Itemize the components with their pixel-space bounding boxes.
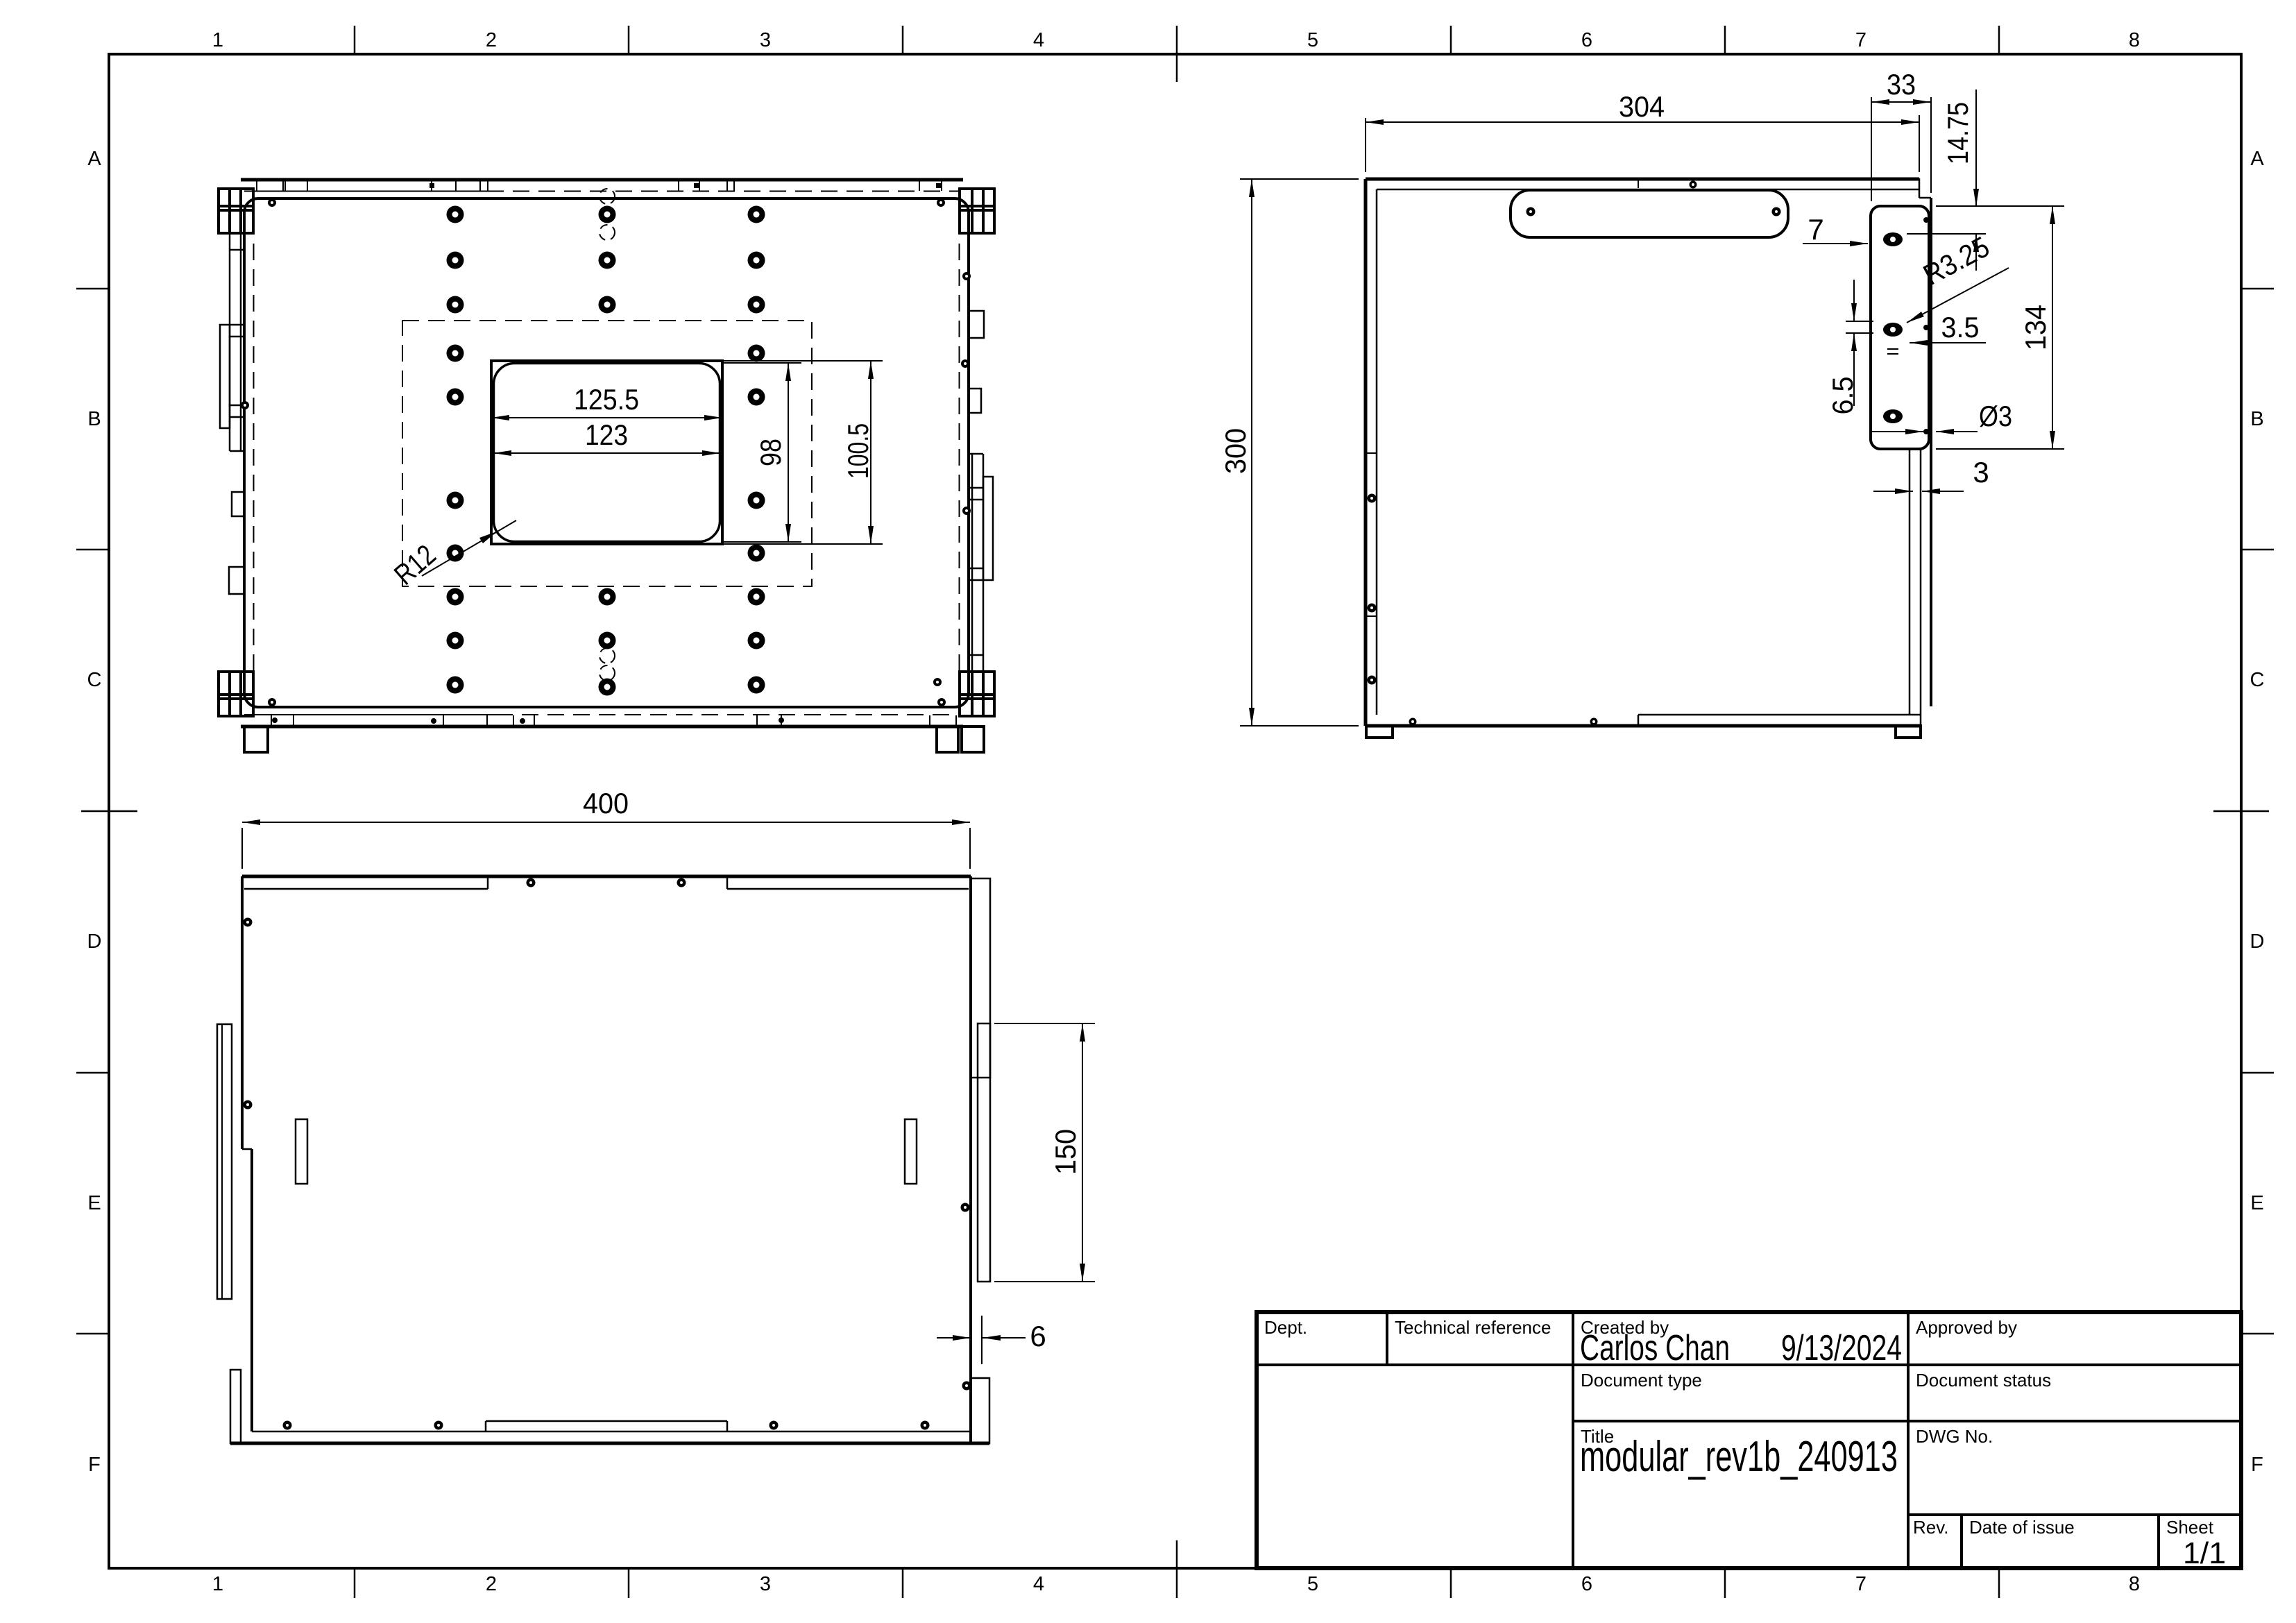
svg-text:E: E (87, 1192, 101, 1214)
svg-text:Technical reference: Technical reference (1395, 1317, 1551, 1338)
svg-text:1: 1 (212, 1573, 223, 1595)
svg-text:Rev.: Rev. (1913, 1517, 1949, 1538)
svg-text:C: C (2250, 669, 2265, 691)
svg-text:3: 3 (1973, 456, 1989, 488)
svg-text:1: 1 (212, 29, 223, 51)
svg-text:3: 3 (760, 1573, 771, 1595)
svg-text:Approved by: Approved by (1916, 1317, 2017, 1338)
svg-text:3.5: 3.5 (1941, 311, 1980, 343)
svg-text:300: 300 (1219, 428, 1252, 474)
svg-text:Ø3: Ø3 (1979, 400, 2012, 432)
svg-text:D: D (87, 931, 102, 953)
svg-text:2: 2 (486, 29, 497, 51)
svg-text:1/1: 1/1 (2183, 1536, 2226, 1570)
svg-text:Dept.: Dept. (1264, 1317, 1307, 1338)
svg-text:150: 150 (1049, 1129, 1082, 1175)
svg-text:8: 8 (2129, 1573, 2140, 1595)
svg-text:4: 4 (1033, 1573, 1044, 1595)
svg-text:6: 6 (1581, 1573, 1592, 1595)
svg-text:E: E (2250, 1192, 2263, 1214)
svg-text:A: A (87, 148, 101, 170)
svg-text:Document status: Document status (1916, 1370, 2051, 1391)
svg-text:Date of issue: Date of issue (1969, 1517, 2075, 1538)
svg-text:6: 6 (1030, 1320, 1046, 1352)
svg-text:Sheet: Sheet (2166, 1517, 2214, 1538)
svg-text:14.75: 14.75 (1941, 102, 1974, 164)
svg-text:B: B (87, 408, 101, 430)
svg-text:2: 2 (486, 1573, 497, 1595)
svg-text:DWG No.: DWG No. (1916, 1426, 1993, 1447)
svg-text:125.5: 125.5 (574, 383, 639, 416)
svg-text:6.5: 6.5 (1826, 377, 1859, 415)
svg-text:304: 304 (1619, 90, 1665, 123)
svg-text:Carlos Chan: Carlos Chan (1580, 1328, 1730, 1368)
svg-text:98: 98 (754, 439, 787, 466)
svg-text:modular_rev1b_240913: modular_rev1b_240913 (1580, 1433, 1898, 1481)
svg-text:7: 7 (1808, 213, 1823, 246)
svg-text:B: B (2250, 408, 2263, 430)
svg-text:A: A (2250, 148, 2264, 170)
svg-text:134: 134 (2019, 305, 2052, 350)
svg-text:400: 400 (583, 787, 629, 819)
svg-text:7: 7 (1855, 1573, 1866, 1595)
svg-text:100.5: 100.5 (842, 423, 874, 479)
svg-text:7: 7 (1855, 29, 1866, 51)
svg-text:33: 33 (1887, 68, 1916, 101)
svg-text:8: 8 (2129, 29, 2140, 51)
svg-text:C: C (87, 669, 102, 691)
svg-text:Document type: Document type (1581, 1370, 1702, 1391)
svg-text:D: D (2250, 931, 2265, 953)
svg-text:4: 4 (1033, 29, 1044, 51)
svg-text:5: 5 (1307, 29, 1318, 51)
svg-text:9/13/2024: 9/13/2024 (1781, 1328, 1902, 1368)
svg-text:6: 6 (1581, 29, 1592, 51)
svg-text:123: 123 (585, 418, 628, 451)
svg-text:F: F (2251, 1454, 2263, 1476)
svg-text:F: F (88, 1454, 101, 1476)
svg-text:3: 3 (760, 29, 771, 51)
svg-text:5: 5 (1307, 1573, 1318, 1595)
